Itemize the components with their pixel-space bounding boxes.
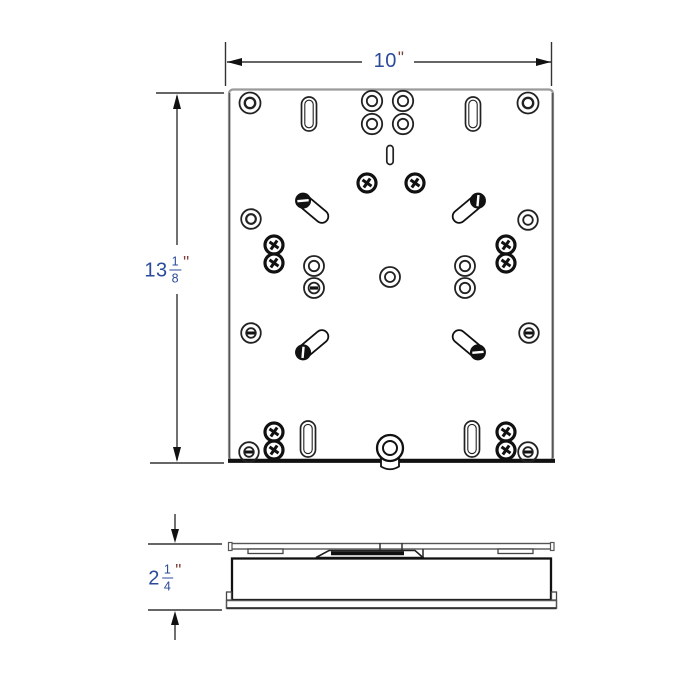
- side-spacer-tab: [498, 549, 533, 554]
- center-bolt: [377, 435, 403, 469]
- phillips-screw: [497, 441, 515, 459]
- phillips-screw: [358, 174, 376, 192]
- side-bottom-flange: [227, 601, 557, 609]
- height-fraction-denominator: 8: [172, 271, 179, 285]
- side-flange-nub: [227, 592, 232, 600]
- arrowhead-down: [173, 447, 181, 462]
- side-top-plate-endcap: [551, 543, 555, 551]
- phillips-screw: [497, 254, 515, 272]
- width-value: 10: [374, 51, 397, 71]
- side-top-plate-endcap: [229, 543, 233, 551]
- phillips-screw: [497, 423, 515, 441]
- technical-drawing-page: 10" 1318" 214": [0, 0, 700, 700]
- thickness-unit-mark: ": [175, 562, 182, 579]
- thickness-fraction-denominator: 4: [164, 579, 171, 593]
- height-whole: 13: [144, 260, 167, 280]
- phillips-screw: [265, 441, 283, 459]
- arrowhead-up: [173, 94, 181, 109]
- thickness-dimension-label: 214": [145, 564, 185, 593]
- height-dimension-label: 1318": [141, 256, 192, 285]
- phillips-screw: [265, 254, 283, 272]
- thickness-whole: 2: [148, 568, 160, 588]
- side-spacer-tab: [248, 549, 283, 554]
- phillips-screw: [265, 236, 283, 254]
- phillips-screw: [265, 423, 283, 441]
- arrowhead-down: [171, 529, 179, 543]
- phillips-screw: [406, 174, 424, 192]
- arrowhead-left: [227, 58, 242, 66]
- height-fraction: 18: [170, 256, 181, 285]
- side-top-plate: [230, 544, 553, 550]
- side-flange-nub: [552, 592, 557, 600]
- side-main-body: [232, 559, 551, 601]
- width-dimension-label: 10": [371, 51, 408, 71]
- thickness-fraction-numerator: 1: [162, 564, 173, 579]
- phillips-screw: [497, 236, 515, 254]
- technical-drawing-canvas: [0, 0, 700, 700]
- height-fraction-numerator: 1: [170, 256, 181, 271]
- arrowhead-up: [171, 611, 179, 625]
- arrowhead-right: [536, 58, 551, 66]
- thickness-fraction: 14: [162, 564, 173, 593]
- height-unit-mark: ": [183, 254, 190, 271]
- width-unit-mark: ": [398, 49, 405, 66]
- plate-side-view: [227, 543, 557, 609]
